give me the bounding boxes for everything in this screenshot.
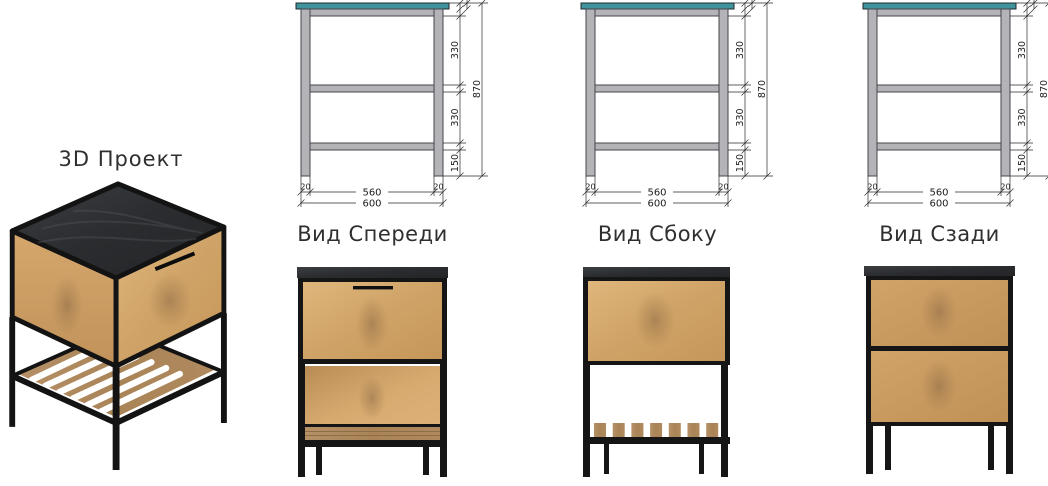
dim-upper-segment: 330 xyxy=(450,41,461,59)
frame-structure xyxy=(581,3,734,176)
dim-right-offset: 20 xyxy=(718,183,728,192)
right-post xyxy=(721,365,728,439)
frame-structure xyxy=(296,3,449,176)
wood-knot xyxy=(51,276,82,335)
dim-right-offset: 20 xyxy=(433,183,443,192)
technical-drawing-front: 330 330 150 870 560 600 20 20 xyxy=(290,0,495,212)
rear-panels-box xyxy=(866,276,1013,426)
dim-inner-width: 560 xyxy=(929,188,948,199)
dim-total-height: 870 xyxy=(757,80,768,98)
dim-left-offset: 20 xyxy=(867,183,877,192)
shelf-front xyxy=(305,424,440,440)
dim-middle-segment: 330 xyxy=(1017,108,1028,126)
dimension-lines xyxy=(298,0,489,207)
bottom-rail xyxy=(583,437,730,444)
wood-knot xyxy=(358,376,386,420)
view-label-rear: Вид Сзади xyxy=(857,221,1022,247)
frame-structure xyxy=(863,3,1016,176)
top-slab xyxy=(864,266,1015,276)
view-rear-column: 330 330 150 870 560 600 20 20 Вид Сзади xyxy=(857,0,1048,484)
dim-leg-segment: 150 xyxy=(1017,154,1028,172)
bottom-rail xyxy=(298,440,447,447)
dim-total-height: 870 xyxy=(472,80,483,98)
view-label-front: Вид Спереди xyxy=(290,221,455,247)
legs xyxy=(583,444,728,477)
furniture-drawing-sheet: { "project": { "title": "3D Проект" }, "… xyxy=(0,0,1048,486)
drawer-box xyxy=(298,278,447,364)
render-rear-view xyxy=(862,262,1017,484)
render-3d-cabinet xyxy=(8,178,234,472)
top-slab xyxy=(583,267,730,277)
right-post xyxy=(440,364,447,444)
dim-left-offset: 20 xyxy=(300,183,310,192)
view-front-column: 330 330 150 870 560 600 20 20 Вид Сперед… xyxy=(290,0,495,484)
render-side-view xyxy=(580,262,735,484)
technical-drawing-rear: 330 330 150 870 560 600 20 20 xyxy=(857,0,1048,212)
top-slab xyxy=(297,267,448,278)
dim-middle-segment: 330 xyxy=(450,108,461,126)
dim-left-offset: 20 xyxy=(585,183,595,192)
left-post xyxy=(298,364,305,444)
dimension-lines xyxy=(865,0,1048,207)
technical-drawing-side: 330 330 150 870 560 600 20 20 xyxy=(575,0,780,212)
wood-knot xyxy=(148,273,191,328)
legs xyxy=(298,447,447,477)
dim-inner-width: 560 xyxy=(647,188,666,199)
view-side-column: 330 330 150 870 560 600 20 20 Вид Сбоку xyxy=(575,0,780,484)
dim-total-height: 870 xyxy=(1039,80,1048,98)
render-front-view xyxy=(295,262,450,484)
side-panel-box xyxy=(583,277,730,365)
dim-right-offset: 20 xyxy=(1000,183,1010,192)
project-title: 3D Проект xyxy=(58,146,183,172)
dim-total-width: 600 xyxy=(362,199,381,210)
dim-middle-segment: 330 xyxy=(735,108,746,126)
dim-leg-segment: 150 xyxy=(450,154,461,172)
dim-upper-segment: 330 xyxy=(735,41,746,59)
dim-total-width: 600 xyxy=(929,199,948,210)
legs xyxy=(866,426,1013,474)
project-3d-section: 3D Проект xyxy=(8,146,234,472)
dim-leg-segment: 150 xyxy=(735,154,746,172)
view-label-side: Вид Сбоку xyxy=(575,221,740,247)
left-post xyxy=(583,365,590,439)
dim-total-width: 600 xyxy=(647,199,666,210)
dimension-lines xyxy=(583,0,774,207)
shelf-side-slats xyxy=(594,423,718,437)
dim-inner-width: 560 xyxy=(362,188,381,199)
drawer-handle xyxy=(353,286,393,289)
dim-upper-segment: 330 xyxy=(1017,41,1028,59)
